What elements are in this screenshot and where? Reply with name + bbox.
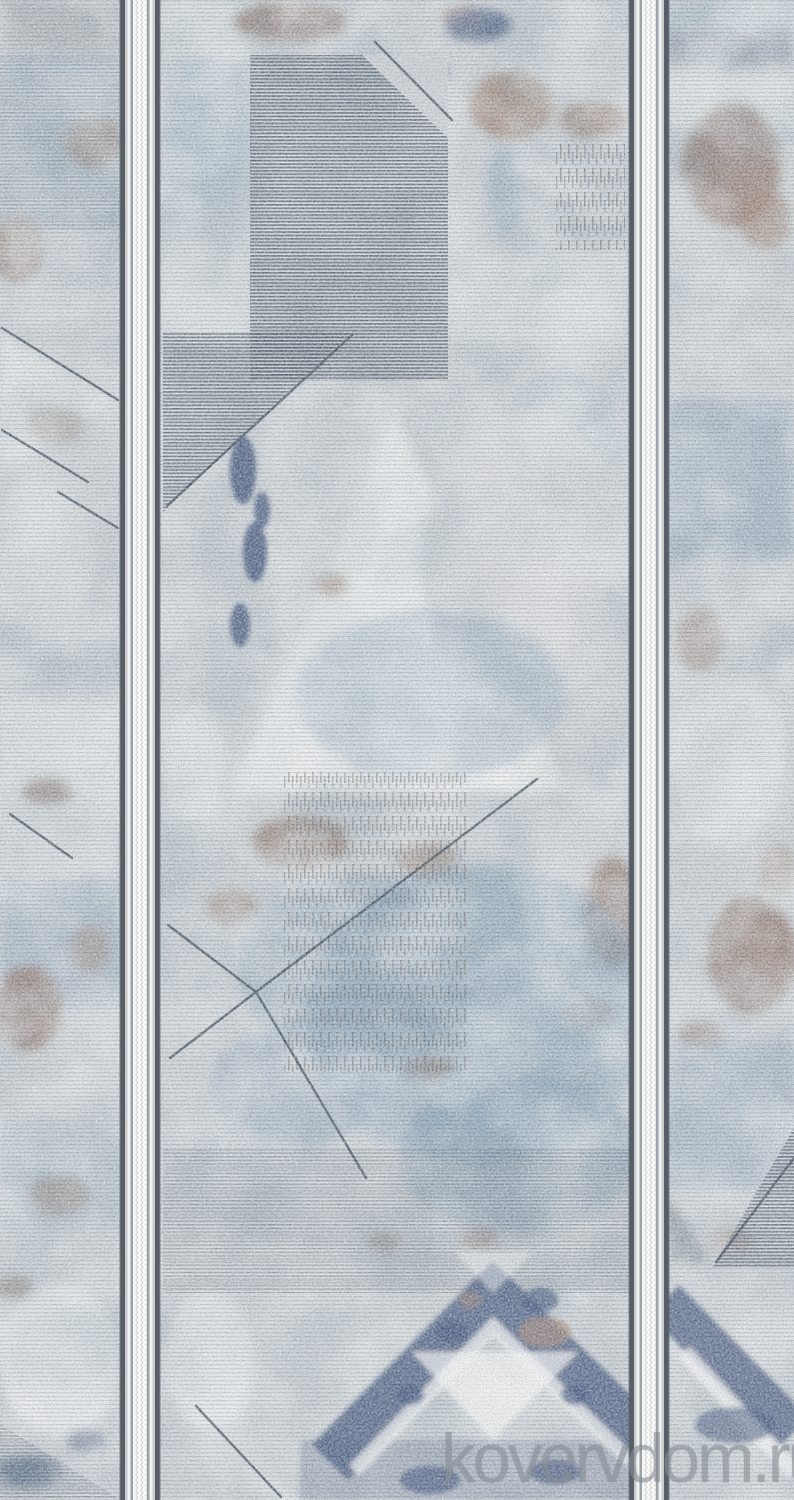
carpet-product-photo: kovervdom.ru [0,0,794,1500]
border-stripe-right [629,0,670,1500]
grain-speckle [0,0,794,1500]
border-stripe-left [120,0,161,1500]
carpet-texture [0,0,794,1500]
